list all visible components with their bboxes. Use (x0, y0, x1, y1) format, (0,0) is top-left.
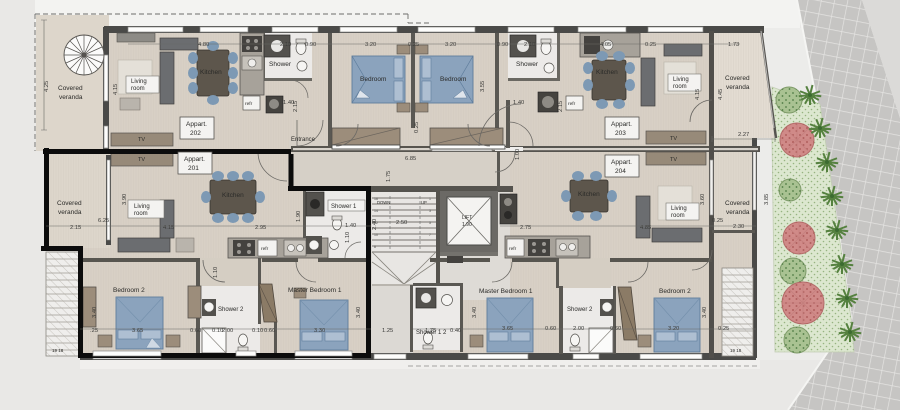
svg-text:4.15: 4.15 (113, 84, 119, 95)
svg-text:refr: refr (568, 101, 576, 107)
svg-text:Kitchen: Kitchen (200, 69, 222, 76)
svg-text:1.90: 1.90 (296, 211, 302, 222)
svg-text:1.90: 1.90 (462, 222, 472, 228)
svg-text:Entrance: Entrance (291, 137, 316, 143)
svg-text:veranda: veranda (59, 94, 83, 101)
svg-text:DOWN: DOWN (377, 200, 390, 205)
svg-text:10: 10 (374, 233, 378, 237)
svg-text:2.10: 2.10 (524, 42, 535, 48)
svg-text:1.10: 1.10 (345, 232, 351, 243)
svg-text:1.25: 1.25 (382, 328, 393, 334)
svg-text:refr: refr (509, 246, 517, 252)
svg-text:UP: UP (421, 200, 427, 205)
svg-text:room: room (671, 213, 685, 219)
svg-text:6.85: 6.85 (405, 156, 416, 162)
svg-text:4.25: 4.25 (44, 81, 50, 92)
svg-text:veranda: veranda (58, 209, 82, 216)
svg-text:Appart.: Appart. (611, 159, 632, 166)
svg-text:3.40: 3.40 (472, 307, 478, 318)
svg-text:TV: TV (138, 157, 145, 163)
svg-text:Shower: Shower (269, 61, 292, 68)
svg-text:8: 8 (374, 245, 376, 249)
svg-text:Covered: Covered (725, 75, 750, 82)
svg-text:Bedroom 2: Bedroom 2 (113, 287, 145, 294)
svg-text:Living: Living (131, 79, 147, 85)
svg-text:Shower 1: Shower 1 (331, 204, 357, 210)
svg-text:1.40: 1.40 (283, 100, 294, 106)
svg-text:2.27: 2.27 (738, 132, 749, 138)
svg-text:Appart.: Appart. (184, 156, 205, 163)
svg-text:1.73: 1.73 (728, 42, 739, 48)
svg-text:Master Bedroom 1: Master Bedroom 1 (479, 288, 533, 295)
svg-text:1: 1 (429, 197, 431, 201)
svg-text:1.40: 1.40 (513, 100, 524, 106)
svg-text:3.20: 3.20 (445, 42, 456, 48)
svg-text:room: room (134, 211, 148, 217)
svg-text:Covered: Covered (57, 200, 82, 207)
svg-text:2.30: 2.30 (733, 224, 744, 230)
svg-text:1.75: 1.75 (386, 171, 392, 182)
svg-text:4.05: 4.05 (600, 42, 611, 48)
svg-text:Shower: Shower (516, 61, 539, 68)
svg-text:Living: Living (134, 204, 150, 210)
svg-text:LIFT: LIFT (462, 215, 472, 221)
svg-text:1.10: 1.10 (213, 267, 219, 278)
svg-text:2.10: 2.10 (280, 42, 291, 48)
svg-text:202: 202 (190, 130, 201, 137)
svg-text:3.40: 3.40 (356, 307, 362, 318)
svg-text:2.40: 2.40 (372, 219, 378, 230)
svg-text:veranda: veranda (726, 209, 750, 216)
svg-text:room: room (131, 86, 145, 92)
svg-text:Covered: Covered (725, 200, 750, 207)
svg-text:4.45: 4.45 (718, 89, 724, 100)
svg-text:0.25: 0.25 (712, 218, 723, 224)
svg-text:Bedroom 2: Bedroom 2 (659, 288, 691, 295)
svg-text:7: 7 (429, 233, 431, 237)
svg-text:1.00: 1.00 (515, 149, 521, 160)
svg-text:Shower 2: Shower 2 (218, 307, 244, 313)
svg-text:6.25: 6.25 (98, 218, 109, 224)
svg-text:0.25: 0.25 (408, 42, 419, 48)
svg-text:3.85: 3.85 (764, 194, 770, 205)
svg-text:Appart.: Appart. (611, 121, 632, 128)
svg-text:3.60: 3.60 (700, 194, 706, 205)
svg-text:Living: Living (671, 206, 687, 212)
svg-text:Appart.: Appart. (186, 121, 207, 128)
svg-text:Bedroom: Bedroom (440, 76, 466, 83)
svg-text:Kitchen: Kitchen (222, 192, 244, 199)
svg-text:3.40: 3.40 (92, 307, 98, 318)
svg-text:Kitchen: Kitchen (596, 69, 618, 76)
svg-text:3.90: 3.90 (122, 194, 128, 205)
svg-text:19 18: 19 18 (730, 348, 742, 353)
svg-text:201: 201 (188, 165, 199, 172)
svg-text:Shower 2: Shower 2 (567, 307, 593, 313)
svg-text:203: 203 (615, 130, 626, 137)
svg-text:4.15: 4.15 (695, 89, 701, 100)
svg-text:TV: TV (670, 136, 677, 142)
svg-text:Covered: Covered (58, 85, 83, 92)
svg-text:3: 3 (429, 209, 431, 213)
svg-text:2.15: 2.15 (558, 101, 564, 112)
svg-text:Living: Living (673, 77, 689, 83)
svg-text:3.20: 3.20 (365, 42, 376, 48)
svg-text:2.50: 2.50 (396, 220, 407, 226)
svg-text:19 18: 19 18 (52, 348, 64, 353)
svg-text:TV: TV (138, 137, 145, 143)
svg-text:3.40: 3.40 (702, 307, 708, 318)
svg-text:0.25: 0.25 (645, 42, 656, 48)
svg-text:refr: refr (245, 101, 253, 107)
svg-text:3.55: 3.55 (480, 81, 486, 92)
svg-text:TV: TV (670, 157, 677, 163)
svg-text:refr: refr (261, 246, 269, 252)
svg-text:Master Bedroom 1: Master Bedroom 1 (288, 287, 342, 294)
svg-text:Kitchen: Kitchen (578, 191, 600, 198)
svg-text:0.90: 0.90 (497, 42, 508, 48)
svg-text:veranda: veranda (726, 84, 750, 91)
svg-text:0.25: 0.25 (414, 122, 420, 133)
svg-text:5: 5 (429, 221, 431, 225)
svg-text:room: room (673, 84, 687, 90)
svg-text:Bedroom: Bedroom (360, 76, 386, 83)
svg-text:14: 14 (374, 209, 378, 213)
svg-text:0.90: 0.90 (305, 42, 316, 48)
svg-text:204: 204 (615, 168, 626, 175)
svg-text:4.80: 4.80 (198, 42, 209, 48)
